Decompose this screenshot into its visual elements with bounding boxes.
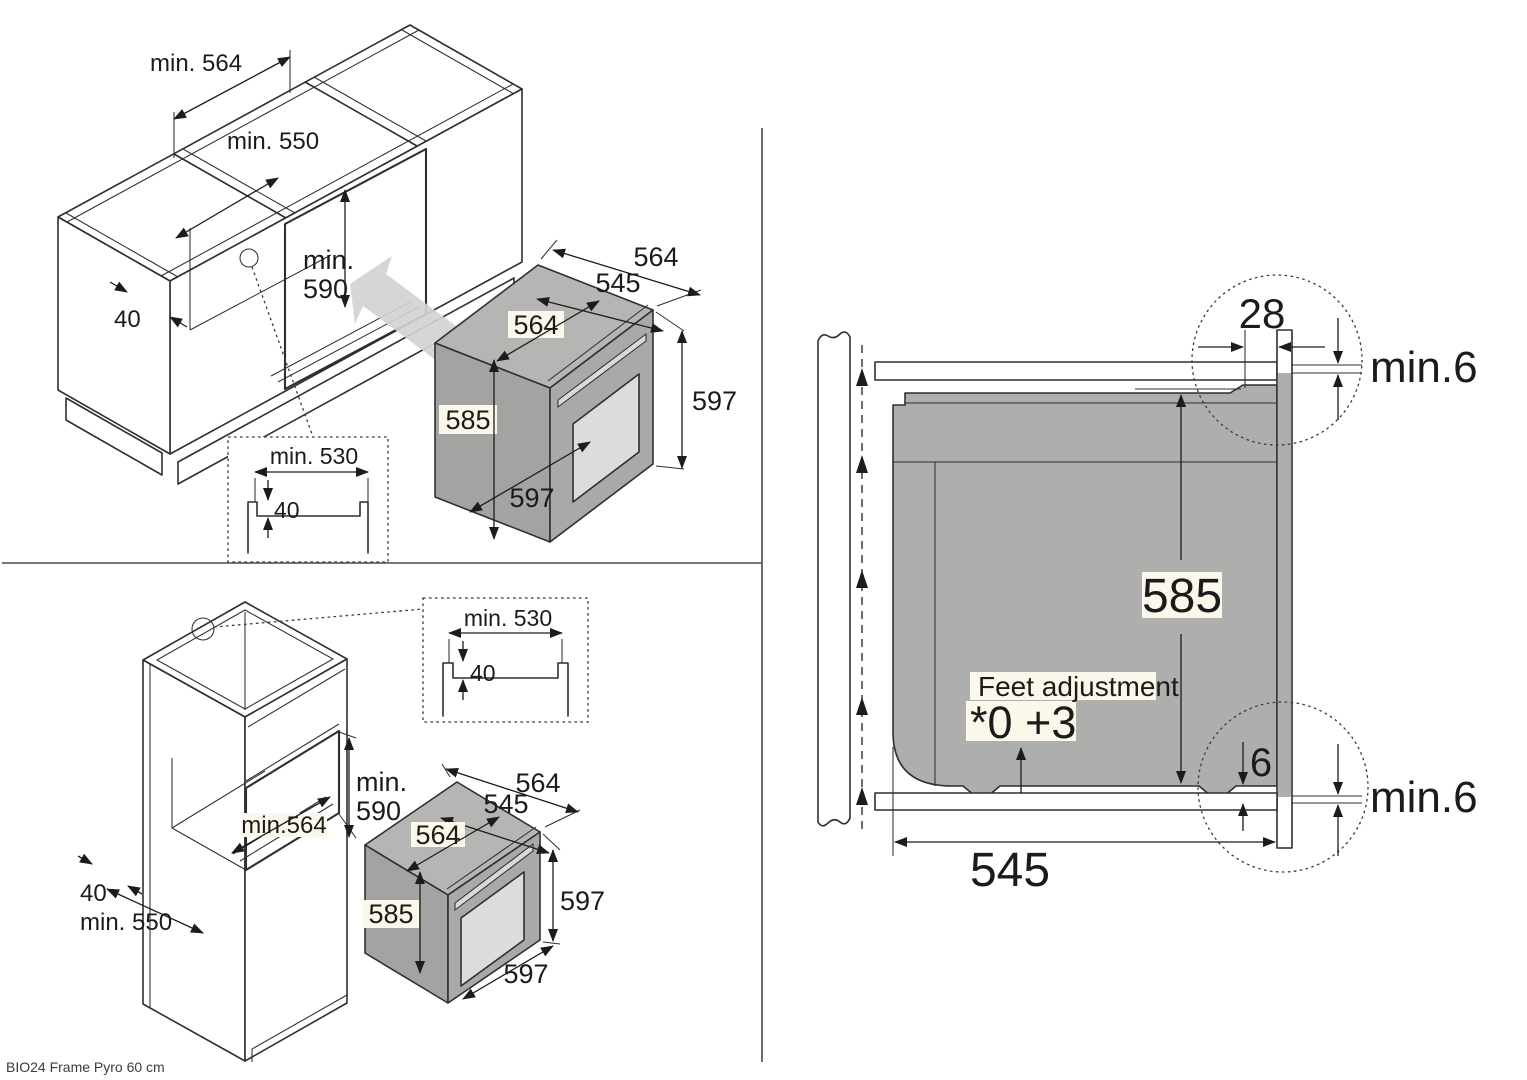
recess-detail-inset-top: min. 530 40: [228, 437, 388, 562]
oven-dim-body-depth: 545: [483, 789, 528, 819]
oven-dim-front-width: 597: [503, 959, 548, 989]
installation-manual-page: min. 564 min. 550 min. 590 40 min. 530 4…: [0, 0, 1527, 1080]
inset-label-recess-width: min. 530: [464, 605, 552, 631]
side-cross-section-diagram: 585 Feet adjustment *0 +3 545 28: [818, 275, 1478, 897]
dim-label-bottom-front-gap: 6: [1250, 741, 1272, 785]
dim-label-body-height: 585: [1142, 570, 1222, 623]
dim-label-opening-width: min. 564: [150, 50, 242, 77]
dim-label-unit-depth: min. 550: [80, 909, 172, 936]
oven-dim-body-width: 564: [513, 310, 558, 340]
undercounter-installation-diagram: min. 564 min. 550 min. 590 40 min. 530 4…: [58, 25, 737, 562]
recess-detail-inset-bottom: min. 530 40: [423, 598, 588, 722]
dim-label-body-depth: 545: [970, 844, 1050, 897]
cabinet-bottom-panel: [875, 793, 1277, 810]
inset-label-recess-depth: 40: [274, 497, 300, 523]
oven-dim-body-height: 585: [445, 405, 490, 435]
inset-label-recess-depth: 40: [470, 660, 496, 686]
dim-label-top-gap: min.6: [1370, 343, 1478, 392]
oven-dim-body-depth: 545: [595, 268, 640, 298]
model-caption: BIO24 Frame Pyro 60 cm: [6, 1059, 165, 1075]
dim-label-niche-width: min.564: [241, 812, 326, 839]
oven-dim-body-width: 564: [415, 820, 460, 850]
oven-dim-front-height: 597: [560, 886, 605, 916]
installation-diagram: min. 564 min. 550 min. 590 40 min. 530 4…: [0, 0, 1527, 1080]
dim-label-niche-height-2: 590: [356, 796, 401, 826]
dim-label-bottom-gap: min.6: [1370, 773, 1478, 822]
dim-label-front-rail: 40: [80, 880, 107, 907]
dim-label-front-rail: 40: [114, 306, 141, 333]
dim-label-opening-depth: min. 550: [227, 128, 319, 155]
dim-label-niche-height-2: 590: [303, 274, 348, 304]
dim-label-frame-overhang: 28: [1239, 290, 1286, 337]
dim-label-niche-height-1: min.: [303, 245, 354, 275]
oven-front-frame: [1277, 330, 1292, 848]
tall-unit-installation-diagram: min. 590 min.564 40 min. 550 min. 530 40: [78, 598, 605, 1062]
inset-label-recess-width: min. 530: [270, 443, 358, 469]
wall-panel: [818, 332, 850, 826]
worktop: [875, 362, 1277, 380]
oven-dim-front-width: 597: [509, 483, 554, 513]
ventilation-flow-line: [856, 345, 868, 833]
oven-dim-body-height: 585: [368, 899, 413, 929]
feet-values-text: *0 +3: [970, 697, 1076, 748]
dim-label-niche-height-1: min.: [356, 767, 407, 797]
oven-dim-front-height: 597: [692, 386, 737, 416]
